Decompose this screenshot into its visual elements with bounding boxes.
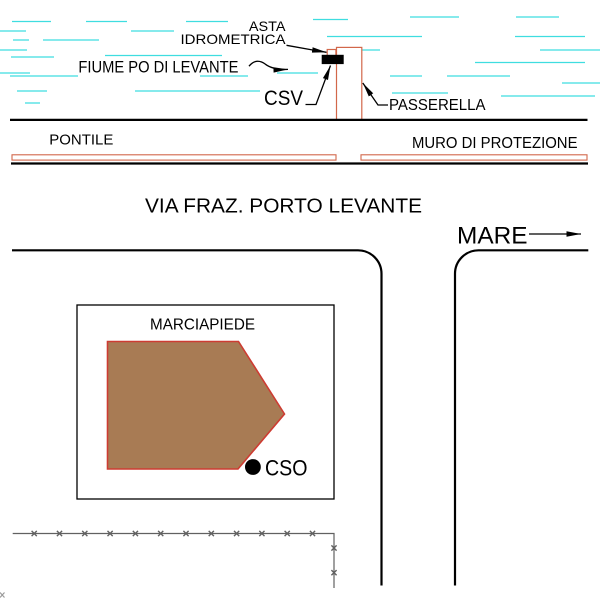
svg-text:MARCIAPIEDE: MARCIAPIEDE [150, 317, 255, 334]
svg-text:FIUME PO DI LEVANTE: FIUME PO DI LEVANTE [78, 58, 238, 76]
svg-text:MURO DI PROTEZIONE: MURO DI PROTEZIONE [412, 135, 578, 152]
svg-text:MARE: MARE [457, 223, 528, 250]
svg-text:PASSERELLA: PASSERELLA [389, 97, 486, 114]
svg-text:CSO: CSO [265, 455, 308, 480]
svg-text:IDROMETRICA: IDROMETRICA [181, 31, 287, 47]
svg-text:VIA FRAZ. PORTO LEVANTE: VIA FRAZ. PORTO LEVANTE [145, 196, 422, 218]
svg-text:PONTILE: PONTILE [49, 132, 113, 149]
svg-text:CSV: CSV [264, 87, 303, 110]
